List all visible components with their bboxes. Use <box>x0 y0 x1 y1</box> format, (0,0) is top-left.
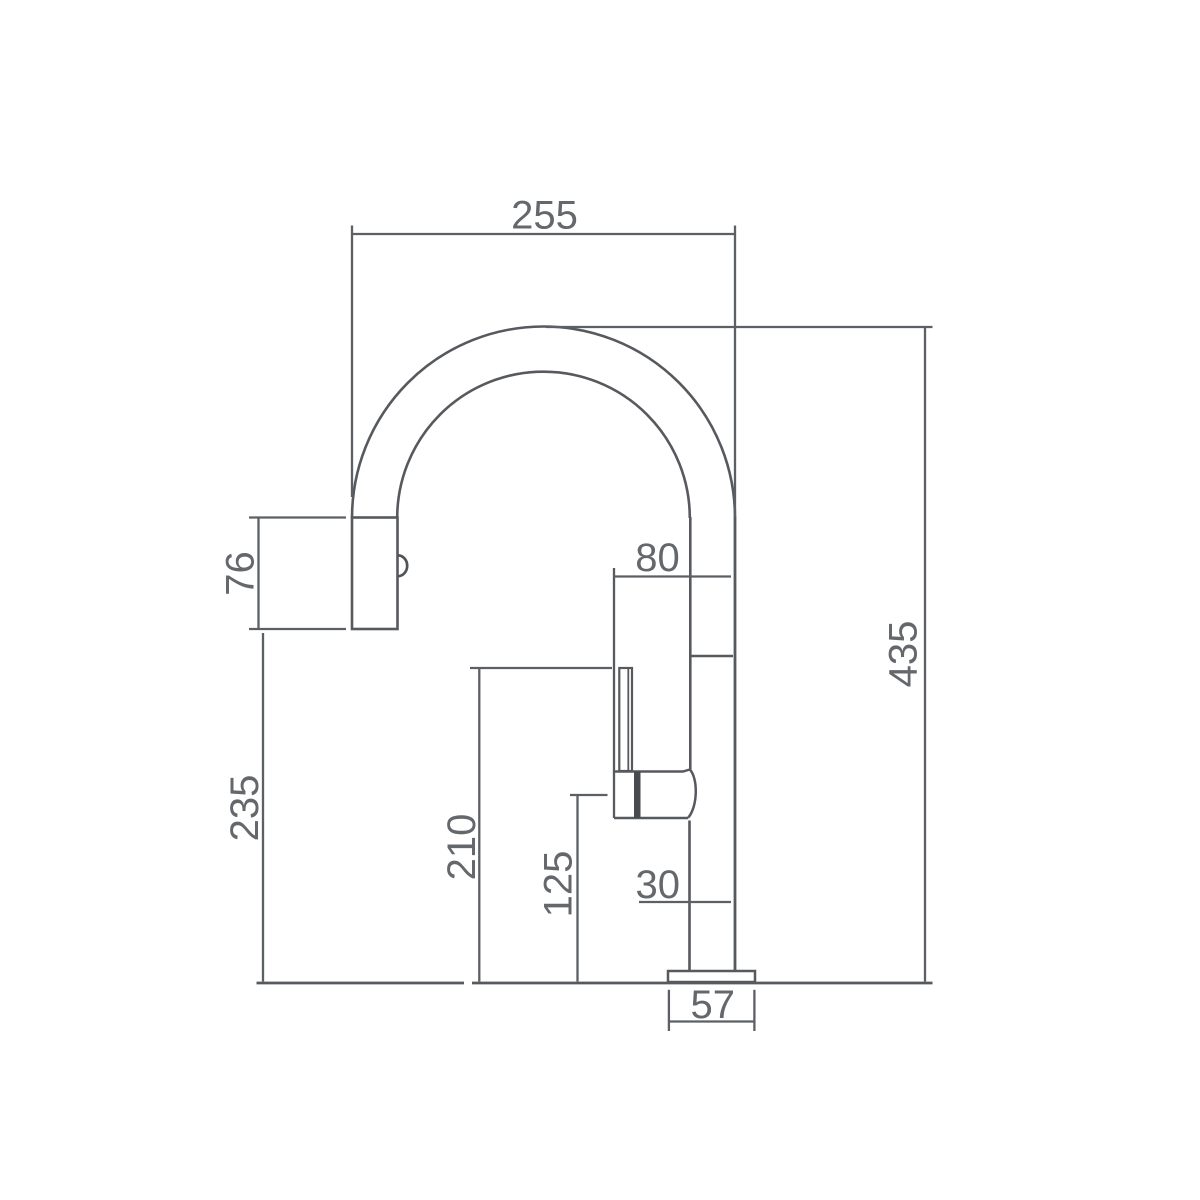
svg-text:125: 125 <box>537 851 581 918</box>
svg-text:235: 235 <box>223 775 267 842</box>
svg-text:435: 435 <box>882 621 926 688</box>
svg-text:76: 76 <box>218 551 262 596</box>
svg-text:57: 57 <box>691 983 736 1027</box>
svg-text:210: 210 <box>440 814 484 881</box>
svg-text:30: 30 <box>636 863 681 907</box>
svg-text:80: 80 <box>635 536 680 580</box>
svg-text:255: 255 <box>511 194 578 238</box>
